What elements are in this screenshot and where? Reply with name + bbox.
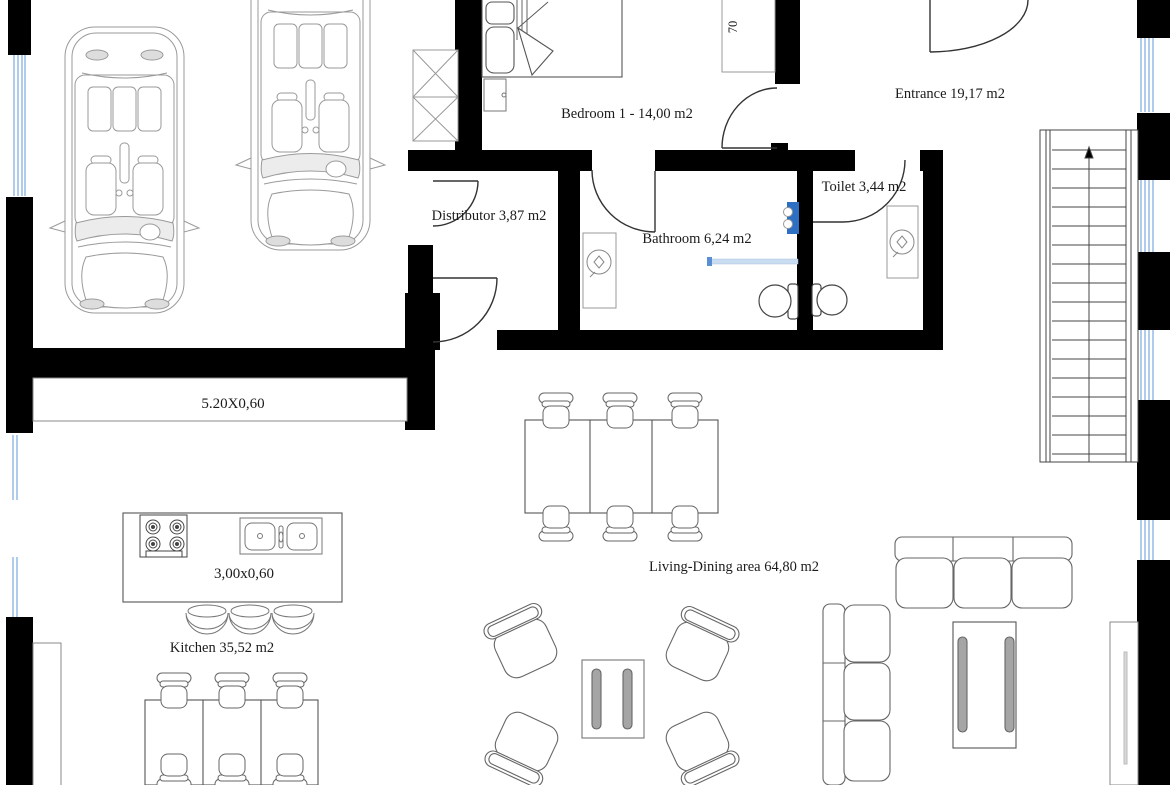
armchair: [482, 707, 564, 785]
kitchen-distributor-door: [433, 278, 497, 342]
armchair: [481, 601, 563, 683]
stairs: [1040, 130, 1138, 462]
toilet-room: Toilet 3,44 m2: [812, 179, 918, 316]
kitchen-chair: [215, 754, 249, 785]
toilet-wc: [812, 284, 847, 316]
tv-console: [1110, 622, 1138, 785]
kitchen: 3,00x0,60 Kitchen 35,52 m2: [33, 513, 342, 785]
kitchen-window-1: [13, 435, 17, 500]
toilet-left-wall: [797, 171, 813, 348]
bedroom-entrance-wall: [775, 0, 800, 84]
right-window-3: [1141, 330, 1153, 400]
garage-window: [14, 55, 25, 196]
kitchen-chair: [273, 673, 307, 708]
dining-chair: [603, 393, 637, 428]
double-sink: [240, 518, 322, 554]
bathroom-door: [592, 170, 655, 232]
kitchen-chair: [157, 673, 191, 708]
car-2: [236, 0, 385, 250]
coffee-table: [582, 660, 644, 738]
bedroom-label: Bedroom 1 - 14,00 m2: [561, 106, 693, 122]
dining-chair: [539, 393, 573, 428]
bar-stool: [229, 605, 271, 634]
floor-plan: 5.20X0,60 Bedroom 1 - 14,00 m2 70 Entran…: [0, 0, 1170, 785]
living-dining-label: Living-Dining area 64,80 m2: [649, 559, 819, 575]
toilet-washbasin: [887, 206, 918, 278]
stove: [140, 515, 187, 557]
car-1: [50, 27, 199, 313]
distributor-bathroom-wall: [558, 171, 580, 336]
kitchen-label: Kitchen 35,52 m2: [170, 640, 274, 656]
bathroom-sink: [784, 202, 800, 234]
distributor: Distributor 3,87 m2: [432, 208, 547, 224]
garage-sideboard-dimension: 5.20X0,60: [201, 396, 264, 412]
toilet-right-wall: [923, 171, 943, 348]
toilet-label: Toilet 3,44 m2: [822, 179, 907, 195]
sofa-vertical: [823, 604, 890, 785]
armchair: [659, 604, 741, 686]
bedroom-left-wall: [455, 0, 482, 152]
kitchen-island-dimension: 3,00x0,60: [214, 566, 274, 582]
bedroom-door: [722, 88, 777, 148]
dining-chair: [668, 393, 702, 428]
entrance-closet: [722, 0, 775, 72]
dining-chair: [668, 506, 702, 541]
right-window-2: [1141, 180, 1153, 252]
distributor-label: Distributor 3,87 m2: [432, 208, 547, 224]
bar-stool: [186, 605, 228, 634]
entrance: 70 Entrance 19,17 m2: [722, 0, 1005, 102]
shower-tray: [583, 233, 616, 308]
garage-bottom-wall: [8, 348, 425, 378]
bedroom: Bedroom 1 - 14,00 m2: [482, 0, 693, 122]
right-window-1: [1141, 38, 1153, 112]
main-entrance-door: [930, 0, 1028, 52]
tv-icon: [1124, 652, 1127, 764]
garage-wardrobe: [413, 50, 458, 141]
dining-chair: [603, 506, 637, 541]
sofa-horizontal: [895, 537, 1072, 608]
entrance-label: Entrance 19,17 m2: [895, 86, 1005, 102]
dining-chair: [539, 506, 573, 541]
side-table: [953, 622, 1016, 748]
right-window-4: [1141, 520, 1153, 560]
bathroom-toilet: [759, 284, 798, 319]
nightstand: [484, 79, 506, 111]
bathroom: Bathroom 6,24 m2: [583, 202, 799, 319]
armchair: [659, 707, 741, 785]
dining-table: [525, 420, 718, 513]
kitchen-window-2: [13, 557, 17, 617]
shower-screen: [707, 257, 798, 266]
kitchen-chair: [215, 673, 249, 708]
kitchen-chair: [273, 754, 307, 785]
bed: [482, 0, 622, 77]
bar-stool: [272, 605, 314, 634]
bathroom-label: Bathroom 6,24 m2: [642, 231, 751, 247]
entrance-closet-dimension: 70: [726, 21, 740, 34]
kitchen-counter: [33, 643, 61, 785]
floor-plan-svg: 5.20X0,60 Bedroom 1 - 14,00 m2 70 Entran…: [0, 0, 1170, 785]
kitchen-chair: [157, 754, 191, 785]
